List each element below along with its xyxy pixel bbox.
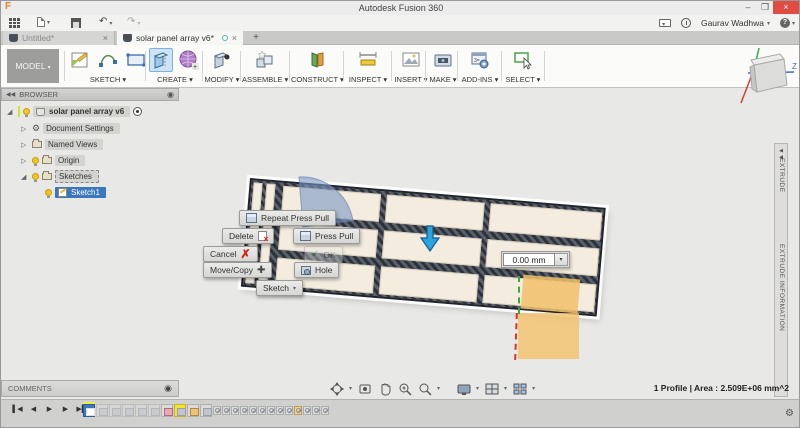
expand-closed-icon[interactable]: ▷ — [21, 141, 29, 149]
tree-item-label: Origin — [58, 156, 79, 165]
toolbar-group-create: + CREATE ▾ — [147, 47, 203, 84]
close-tab-icon[interactable]: × — [232, 33, 237, 43]
folder-icon — [32, 141, 42, 148]
help-menu[interactable]: ? ▾ — [780, 18, 795, 28]
construction-plane-icon[interactable] — [305, 48, 329, 72]
active-component-bar — [18, 106, 20, 117]
tree-row-sketch1[interactable]: Sketch1 — [45, 186, 106, 199]
timeline-extrude-feature[interactable] — [267, 406, 275, 415]
workspace-label: MODEL — [15, 61, 45, 71]
tree-row-named-views[interactable]: ▷ Named Views — [21, 138, 103, 151]
root-component-chip[interactable]: solar panel array v6 — [33, 106, 130, 117]
visibility-bulb-icon[interactable] — [32, 157, 39, 164]
tree-item-label: Sketch1 — [71, 188, 100, 197]
navigation-bar: ▾ ▾ ▾ ▾ ▾ — [329, 380, 535, 397]
folder-icon — [42, 173, 52, 180]
cancel-x-icon: ✗ — [240, 249, 250, 259]
timeline-extrude-feature[interactable] — [249, 406, 257, 415]
make-3d-print-icon[interactable] — [431, 48, 455, 72]
comments-bar[interactable]: COMMENTS ◉ — [1, 380, 179, 397]
workspace-switcher[interactable]: MODEL ▾ — [7, 49, 59, 83]
tree-row-sketches[interactable]: ◢ Sketches — [21, 170, 99, 183]
tab-solar-panel-array[interactable]: solar panel array v6* × — [117, 31, 243, 45]
timeline-extrude-feature[interactable] — [258, 406, 266, 415]
chevron-down-icon[interactable]: ▾ — [532, 385, 535, 392]
toolbar-group-addins: 3= ADD-INS ▾ — [459, 47, 501, 84]
tab-untitled[interactable]: Untitled* × — [3, 31, 115, 45]
restore-button[interactable]: ❐ — [756, 1, 774, 14]
tab-label: Untitled* — [22, 33, 99, 43]
menu-label: Press Pull — [315, 231, 353, 241]
sketch-icon — [58, 188, 67, 197]
collapsed-dialog-strip[interactable]: ◀◀ EXTRUDE EXTRUDE INFORMATION — [774, 143, 788, 397]
redo-icon: ↷ — [127, 16, 135, 27]
selected-sketch-chip[interactable]: Sketch1 — [55, 187, 106, 198]
menu-repeat-press-pull[interactable]: Repeat Press Pull — [239, 210, 336, 226]
timeline-step-forward-button[interactable]: ▶ — [59, 405, 72, 413]
chevron-down-icon: ▾ — [137, 20, 140, 27]
chevron-down-icon: ▾ — [47, 19, 50, 26]
visibility-bulb-icon[interactable] — [23, 108, 30, 115]
dimension-input-group: 0.00 mm ▾ — [501, 251, 570, 268]
group-label[interactable]: INSERT ▾ — [393, 75, 429, 84]
menu-cancel[interactable]: Cancel ✗ — [203, 246, 258, 262]
tab-label: solar panel array v6* — [136, 33, 218, 43]
toolbar-group-construct: CONSTRUCT ▾ — [291, 47, 343, 84]
hole-icon — [301, 266, 311, 275]
fusion360-window: F Autodesk Fusion 360 – ❐ × ▾ ↶ ▾ ↷ ▾ Ga… — [0, 0, 800, 428]
sync-status-icon — [222, 35, 228, 41]
user-name: Gaurav Wadhwa — [701, 18, 764, 28]
group-label[interactable]: CONSTRUCT ▾ — [291, 75, 343, 84]
comments-expand-icon[interactable]: ◉ — [164, 383, 172, 394]
collapse-panel-icon[interactable]: ◀◀ — [6, 91, 15, 98]
tree-row-document-settings[interactable]: ▷ ⚙ Document Settings — [21, 122, 120, 135]
toolbar-group-select: SELECT ▾ — [503, 47, 543, 84]
look-at-icon[interactable] — [357, 381, 372, 396]
new-tab-button[interactable]: + — [249, 32, 263, 44]
quick-access-bar: ▾ ↶ ▾ ↷ ▾ Gaurav Wadhwa ▾ ? ▾ — [1, 15, 800, 31]
group-label[interactable]: INSPECT ▾ — [345, 75, 391, 84]
document-tab-bar: Untitled* × solar panel array v6* × + — [1, 31, 800, 45]
menu-press-pull[interactable]: Press Pull — [293, 228, 360, 244]
toolbar-divider — [202, 51, 203, 81]
toolbar-group-make: MAKE ▾ — [427, 47, 459, 84]
group-label[interactable]: MAKE ▾ — [427, 75, 459, 84]
browser-header[interactable]: ◀◀ BROWSER ◉ — [1, 88, 179, 101]
dimension-input[interactable]: 0.00 mm — [503, 253, 555, 266]
view-cube[interactable]: Z — [734, 45, 798, 117]
timeline-extrude-feature[interactable] — [303, 406, 311, 415]
tree-root-row[interactable]: ◢ solar panel array v6 — [7, 105, 142, 118]
svg-text:+: + — [193, 64, 197, 71]
menu-sketch-dropdown[interactable]: Sketch ▾ — [256, 280, 303, 296]
folder-icon — [42, 157, 52, 164]
undo-icon: ↶ — [99, 16, 107, 27]
select-icon[interactable] — [511, 48, 535, 72]
panel-cell[interactable] — [379, 266, 479, 302]
toolbar-divider — [64, 51, 65, 81]
menu-ok[interactable]: ✓ OK — [304, 246, 343, 263]
main-toolbar: MODEL ▾ SKETCH ▾ — [1, 45, 800, 88]
data-panel-icon[interactable] — [9, 18, 20, 28]
group-label[interactable]: ADD-INS ▾ — [459, 75, 501, 84]
toolbar-divider — [457, 51, 458, 81]
toolbar-group-inspect: INSPECT ▾ — [345, 47, 391, 84]
chevron-down-icon[interactable]: ▾ — [476, 385, 479, 392]
chevron-down-icon: ▾ — [109, 20, 112, 27]
extrude-dialog-tab[interactable]: EXTRUDE — [778, 158, 785, 193]
delete-icon — [258, 231, 267, 241]
new-design-button[interactable]: ▾ — [37, 17, 50, 27]
timeline-step-back-button[interactable]: ◀ — [27, 405, 40, 413]
highlighted-profile[interactable] — [521, 275, 581, 314]
user-menu[interactable]: Gaurav Wadhwa ▾ — [701, 18, 770, 28]
menu-label: Move/Copy — [210, 265, 253, 275]
close-tab-icon[interactable]: × — [103, 33, 108, 43]
toolbar-divider — [145, 51, 146, 81]
expand-open-icon[interactable]: ◢ — [21, 173, 29, 181]
move-icon: ✚ — [257, 266, 265, 275]
timeline-revert-feature[interactable] — [135, 404, 147, 417]
expand-closed-icon[interactable]: ▷ — [21, 157, 29, 165]
timeline-extrude-feature[interactable] — [321, 406, 329, 415]
activate-component-radio[interactable] — [133, 107, 142, 116]
document-icon — [123, 34, 132, 42]
browser-settings-icon[interactable]: ◉ — [167, 90, 174, 99]
document-icon — [9, 34, 18, 42]
toolbar-divider — [240, 51, 241, 81]
chevron-down-icon[interactable]: ▾ — [349, 385, 352, 392]
chevron-down-icon[interactable]: ▾ — [504, 385, 507, 392]
measure-icon[interactable] — [356, 48, 380, 72]
timeline-play-button[interactable]: ▶ — [43, 405, 56, 413]
fit-icon[interactable] — [417, 381, 432, 396]
tree-row-origin[interactable]: ▷ Origin — [21, 154, 85, 167]
expand-closed-icon[interactable]: ▷ — [21, 125, 29, 133]
chevron-down-icon: ▾ — [792, 20, 795, 27]
group-label[interactable]: ASSEMBLE ▾ — [242, 75, 288, 84]
timeline-extrude-feature[interactable] — [213, 406, 221, 415]
settings-gear-icon: ⚙ — [32, 123, 40, 134]
press-pull-icon — [246, 213, 257, 223]
timeline-box-feature[interactable] — [187, 404, 199, 417]
menu-move-copy[interactable]: Move/Copy ✚ — [203, 262, 272, 278]
axis-label-z: Z — [792, 62, 797, 71]
insert-image-icon[interactable] — [399, 48, 423, 72]
toolbar-group-insert: INSERT ▾ — [393, 47, 429, 84]
display-settings-icon[interactable] — [456, 381, 471, 396]
group-label[interactable]: SKETCH ▾ — [67, 75, 149, 84]
toolbar-divider — [544, 51, 545, 81]
selection-status: 1 Profile | Area : 2.509E+06 mm^2 — [654, 383, 789, 393]
new-component-icon[interactable] — [253, 48, 277, 72]
undo-button[interactable]: ↶ ▾ — [99, 16, 112, 27]
timeline-extrude-feature[interactable] — [285, 406, 293, 415]
menu-label: Repeat Press Pull — [261, 213, 329, 223]
svg-text:3=: 3= — [474, 58, 480, 64]
timeline-extrude-feature[interactable] — [96, 404, 108, 417]
menu-label: Sketch — [263, 283, 289, 293]
toolbar-divider — [343, 51, 344, 81]
title-bar: F Autodesk Fusion 360 – ❐ × — [1, 1, 800, 15]
redo-button[interactable]: ↷ ▾ — [127, 16, 140, 27]
orbit-icon[interactable] — [329, 381, 344, 396]
extrude-icon[interactable] — [149, 48, 173, 72]
toolbar-divider — [289, 51, 290, 81]
press-pull-icon[interactable] — [210, 48, 234, 72]
zoom-icon[interactable] — [397, 381, 412, 396]
timeline-extrude-feature[interactable] — [222, 406, 230, 415]
dimension-dropdown[interactable]: ▾ — [555, 253, 568, 266]
chevron-down-icon: ▾ — [293, 285, 296, 292]
timeline-sketch-feature-selected[interactable] — [83, 404, 95, 417]
create-form-icon[interactable]: + — [177, 48, 201, 72]
timeline-features — [83, 404, 329, 417]
component-name: solar panel array v6 — [49, 107, 124, 116]
toolbar-group-modify: MODIFY ▾ — [204, 47, 240, 84]
menu-label: Delete — [229, 231, 254, 241]
tree-item-label: Named Views — [48, 140, 97, 149]
timeline-form-feature[interactable] — [148, 404, 160, 417]
create-sketch-icon[interactable] — [68, 48, 92, 72]
feedback-icon[interactable] — [659, 19, 671, 27]
ok-check-icon: ✓ — [311, 249, 319, 260]
timeline-sketch-feature[interactable] — [200, 404, 212, 417]
timeline-extrude-feature[interactable] — [276, 406, 284, 415]
chevron-down-icon[interactable]: ▾ — [437, 385, 440, 392]
new-document-icon — [37, 17, 45, 27]
spline-icon[interactable] — [96, 48, 120, 72]
visibility-bulb-icon[interactable] — [32, 173, 39, 180]
menu-label: Hole — [315, 265, 332, 275]
timeline-extrude-feature-highlighted[interactable] — [294, 406, 302, 415]
timeline-sketch-feature-highlighted[interactable] — [174, 404, 186, 417]
tree-item-label: Sketches — [59, 172, 92, 181]
extrude-information-tab[interactable]: EXTRUDE INFORMATION — [778, 244, 785, 331]
chevron-down-icon: ▾ — [767, 20, 770, 27]
component-icon — [36, 108, 45, 116]
job-status-icon[interactable] — [681, 18, 691, 28]
app-title: Autodesk Fusion 360 — [1, 3, 800, 13]
tree-item-label: Document Settings — [46, 124, 114, 133]
expand-open-icon[interactable]: ◢ — [7, 108, 15, 116]
grid-layout-icon[interactable] — [484, 381, 499, 396]
help-icon: ? — [780, 18, 790, 28]
timeline-extrude-feature[interactable] — [231, 406, 239, 415]
toolbar-divider — [501, 51, 502, 81]
toolbar-divider — [391, 51, 392, 81]
press-pull-icon — [300, 231, 311, 241]
timeline-bar: ▌◀ ◀ ▶ ▶ ▶▌ — [1, 399, 800, 428]
minimize-button[interactable]: – — [739, 1, 757, 14]
group-label[interactable]: MODIFY ▾ — [204, 75, 240, 84]
toolbar-group-assemble: ASSEMBLE ▾ — [242, 47, 288, 84]
timeline-joint-origin-feature[interactable] — [122, 404, 134, 417]
close-button[interactable]: × — [773, 1, 799, 14]
axis-line-green — [518, 276, 520, 314]
pan-icon[interactable] — [377, 381, 392, 396]
group-label[interactable]: CREATE ▾ — [147, 75, 203, 84]
visibility-bulb-icon[interactable] — [45, 189, 52, 196]
timeline-extrude-feature[interactable] — [312, 406, 320, 415]
panel-cell[interactable] — [488, 203, 602, 240]
menu-label: Cancel — [210, 249, 236, 259]
timeline-settings-gear-icon[interactable]: ⚙ — [785, 408, 794, 419]
extrude-direction-arrow[interactable] — [419, 225, 441, 253]
menu-hole[interactable]: Hole — [294, 262, 339, 278]
menu-delete[interactable]: Delete — [222, 228, 274, 244]
timeline-joint-feature[interactable] — [161, 404, 173, 417]
toolbar-divider — [425, 51, 426, 81]
viewports-icon[interactable] — [512, 381, 527, 396]
menu-label: OK — [323, 250, 335, 260]
highlighted-profile-extension[interactable] — [518, 313, 579, 359]
chevron-down-icon: ▾ — [48, 65, 51, 71]
save-button[interactable] — [71, 18, 81, 28]
browser-title: BROWSER — [19, 90, 163, 99]
timeline-extrude-feature[interactable] — [240, 406, 248, 415]
scripts-addins-icon[interactable]: 3= — [468, 48, 492, 72]
timeline-goto-start-button[interactable]: ▌◀ — [11, 405, 24, 413]
timeline-joint-feature[interactable] — [109, 404, 121, 417]
group-label[interactable]: SELECT ▾ — [503, 75, 543, 84]
toolbar-group-sketch: SKETCH ▾ — [67, 47, 149, 84]
comments-label: COMMENTS — [8, 384, 160, 393]
